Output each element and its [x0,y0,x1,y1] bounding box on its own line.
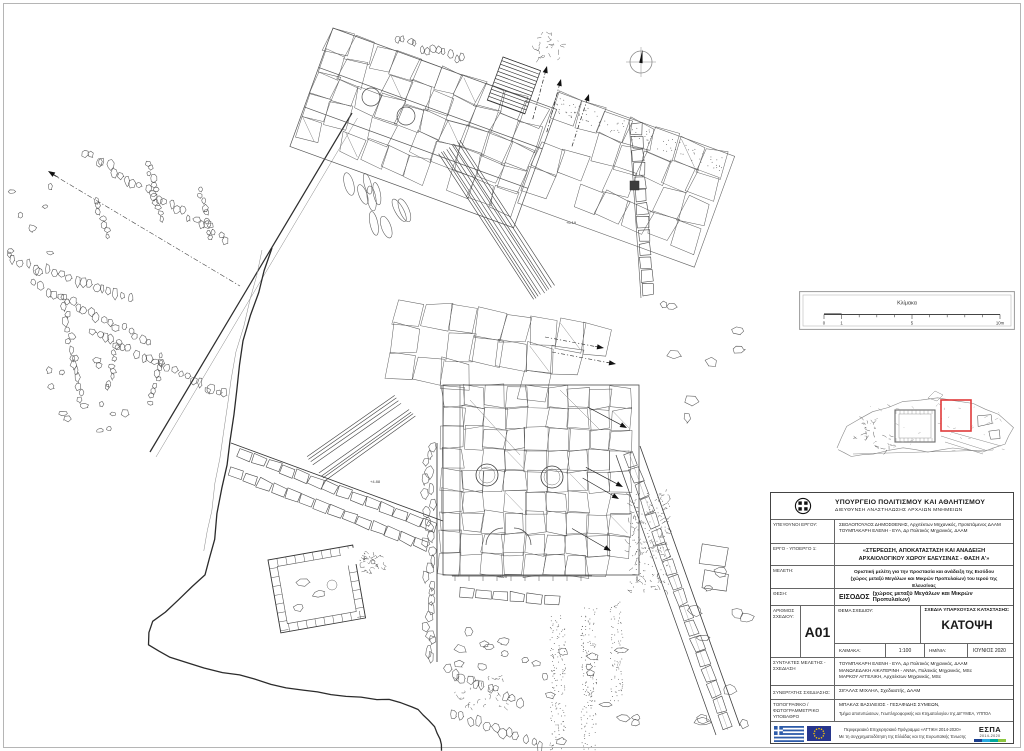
drawing-subject-label: ΘΕΜΑ ΣΧΕΔΙΟΥ: [835,606,921,643]
location-key-map [833,388,1017,466]
drawing-number-value: A01 [801,606,835,657]
svg-text:+6.19: +6.19 [566,220,577,225]
authors-row: ΣΥΝΤΑΚΤΕΣ ΜΕΛΕΤΗΣ - ΣΧΕΔΙΑΣΗ ΤΟΥΜΠΑΚΑΡΗ … [771,657,1013,685]
ministry-emblem-icon [794,497,812,515]
funding-row: Περιφερειακό Επιχειρησιακό Πρόγραμμα «ΑΤ… [771,721,1013,745]
espa-years: 2014-2020 [970,734,1010,738]
drawing-title: ΚΑΤΟΨΗ [921,618,1013,632]
date-value: ΙΟΥΝΙΟΣ 2020 [967,644,1013,657]
project-line-2: ΑΡΧΑΙΟΛΟΓΙΚΟΥ ΧΩΡΟΥ ΕΛΕΥΣΙΝΑΣ - ΦΑΣΗ Α'» [839,555,1009,564]
study-line-2: (χώρος μεταξύ Μεγάλων και Μικρών Προπυλα… [839,577,1009,588]
title-block-header: ΥΠΟΥΡΓΕΙΟ ΠΟΛΙΤΙΣΜΟΥ ΚΑΙ ΑΘΛΗΤΙΣΜΟΥ ΔΙΕΥ… [771,493,1013,519]
drawing-sheet: +8.20+6.19+4.88 Κλίμακα 0 1 5 10m [0,0,1024,751]
plan-content: +8.20+6.19+4.88 [7,25,754,751]
location-detail: (χώρος μεταξύ Μεγάλων και Μικρών Προπυλα… [873,591,1009,603]
collaborator-row: ΣΥΝΕΡΓΑΤΗΣ ΣΧΕΔΙΑΣΗΣ: ΣΙΓΑΛΑΣ ΜΙΧΑΗΛ, Σχ… [771,685,1013,699]
svg-text:+8.20: +8.20 [497,574,508,579]
scale-value: 1:100 [885,644,924,657]
study-label: ΜΕΛΕΤΗ: [771,566,835,588]
supervisors-label: ΥΠΕΥΘΥΝΟΙ ΕΡΓΟΥ: [771,520,835,543]
scale-box-title: Κλίμακα [897,301,918,307]
funding-line-1: Περιφερειακό Επιχειρησιακό Πρόγραμμα «ΑΤ… [835,727,970,734]
location-row: ΘΕΣΗ: ΕΙΣΟΔΟΣ (χώρος μεταξύ Μεγάλων και … [771,588,1013,605]
subject-row: ΑΡΙΘΜΟΣ ΣΧΕΔΙΟΥ: A01 ΘΕΜΑ ΣΧΕΔΙΟΥ: ΣΧΕΔΙ… [771,605,1013,657]
collaborator-label: ΣΥΝΕΡΓΑΤΗΣ ΣΧΕΔΙΑΣΗΣ: [771,686,835,699]
drawing-state-label: ΣΧΕΔΙΑ ΥΠΑΡΧΟΥΣΑΣ ΚΑΤΑΣΤΑΣΗΣ: [921,608,1013,615]
espa-text: ΕΣΠΑ [970,725,1010,734]
ministry-title: ΥΠΟΥΡΓΕΙΟ ΠΟΛΙΤΙΣΜΟΥ ΚΑΙ ΑΘΛΗΤΙΣΜΟΥ [835,499,1013,506]
greek-flag-icon [774,726,804,742]
north-arrow-icon [625,46,657,78]
scale-label: ΚΛΙΜΑΚΑ: [835,648,885,653]
date-label: ΗΜ/ΝΙΑ: [924,644,967,657]
directorate-title: ΔΙΕΥΘΥΝΣΗ ΑΝΑΣΤΗΛΩΣΗΣ ΑΡΧΑΙΩΝ ΜΝΗΜΕΙΩΝ [835,508,1013,513]
espa-logo: ΕΣΠΑ 2014-2020 [970,725,1010,742]
funding-line-2: Με τη συγχρηματοδότηση της Ελλάδας και τ… [835,734,970,741]
drawing-number-label: ΑΡΙΘΜΟΣ ΣΧΕΔΙΟΥ: [771,606,801,657]
base-map-row: ΤΟΠΟΓΡΑΦΙΚΟ / ΦΩΤΟΓΡΑΜΜΕΤΡΙΚΟ ΥΠΟΒΑΘΡΟ Μ… [771,699,1013,721]
location-label: ΘΕΣΗ: [771,589,835,605]
espa-color-bar [974,739,1006,742]
scale-box: Κλίμακα 0 1 5 10m [799,291,1015,330]
svg-text:+4.88: +4.88 [370,479,381,484]
study-row: ΜΕΛΕΤΗ: Οριστική μελέτη για την προστασί… [771,565,1013,588]
scale-tick-10m: 10m [996,321,1005,326]
base-map-label: ΤΟΠΟΓΡΑΦΙΚΟ / ΦΩΤΟΓΡΑΜΜΕΤΡΙΚΟ ΥΠΟΒΑΘΡΟ [771,700,835,721]
supervisors-row: ΥΠΕΥΘΥΝΟΙ ΕΡΓΟΥ: ΣΒΟΛΟΠΟΥΛΟΣ ΔΗΜΟΣΘΕΝΗΣ,… [771,519,1013,543]
project-row: ΕΡΓΟ - ΥΠΟΕΡΓΟ 1: «ΣΤΕΡΕΩΣΗ, ΑΠΟΚΑΤΑΣΤΑΣ… [771,543,1013,565]
collaborator-value: ΣΙΓΑΛΑΣ ΜΙΧΑΗΛ, Σχεδιαστής, ΔΑΑΜ [835,688,1013,698]
base-map-line-2: Τμήμα αποτυπώσεων, Γεωπληροφορικής και Κ… [839,711,1009,716]
project-label: ΕΡΓΟ - ΥΠΟΕΡΓΟ 1: [771,544,835,565]
base-map-line-1: ΜΠΑΚΑΣ ΒΑΣΙΛΕΙΟΣ - ΓΕΣΑΦΙΔΗΣ ΣΥΜΕΩΝ, [839,703,1009,710]
eu-flag-icon [807,726,831,741]
supervisor-2: ΤΟΥΜΠΑΚΑΡΗ ΕΛΕΝΗ - ΕΥΑ, Δρ Πολιτικός Μηχ… [839,528,1009,535]
project-line-1: «ΣΤΕΡΕΩΣΗ, ΑΠΟΚΑΤΑΣΤΑΣΗ ΚΑΙ ΑΝΑΔΕΙΞΗ [839,547,1009,556]
building-outline [268,545,367,633]
study-line-1: Οριστική μελέτη για την προστασία και αν… [839,570,1009,577]
author-1: ΤΟΥΜΠΑΚΑΡΗ ΕΛΕΝΗ - ΕΥΑ, Δρ Πολιτικός Μηχ… [839,661,1009,668]
title-block: ΥΠΟΥΡΓΕΙΟ ΠΟΛΙΤΙΣΜΟΥ ΚΑΙ ΑΘΛΗΤΙΣΜΟΥ ΔΙΕΥ… [770,492,1014,744]
location-value: ΕΙΣΟΔΟΣ [839,594,870,601]
author-3: ΜΑΡΚΟΥ ΑΓΓΕΛΙΚΗ, Αρχιτέκτων Μηχανικός, M… [839,674,1009,681]
authors-label: ΣΥΝΤΑΚΤΕΣ ΜΕΛΕΤΗΣ - ΣΧΕΔΙΑΣΗ [771,658,835,685]
